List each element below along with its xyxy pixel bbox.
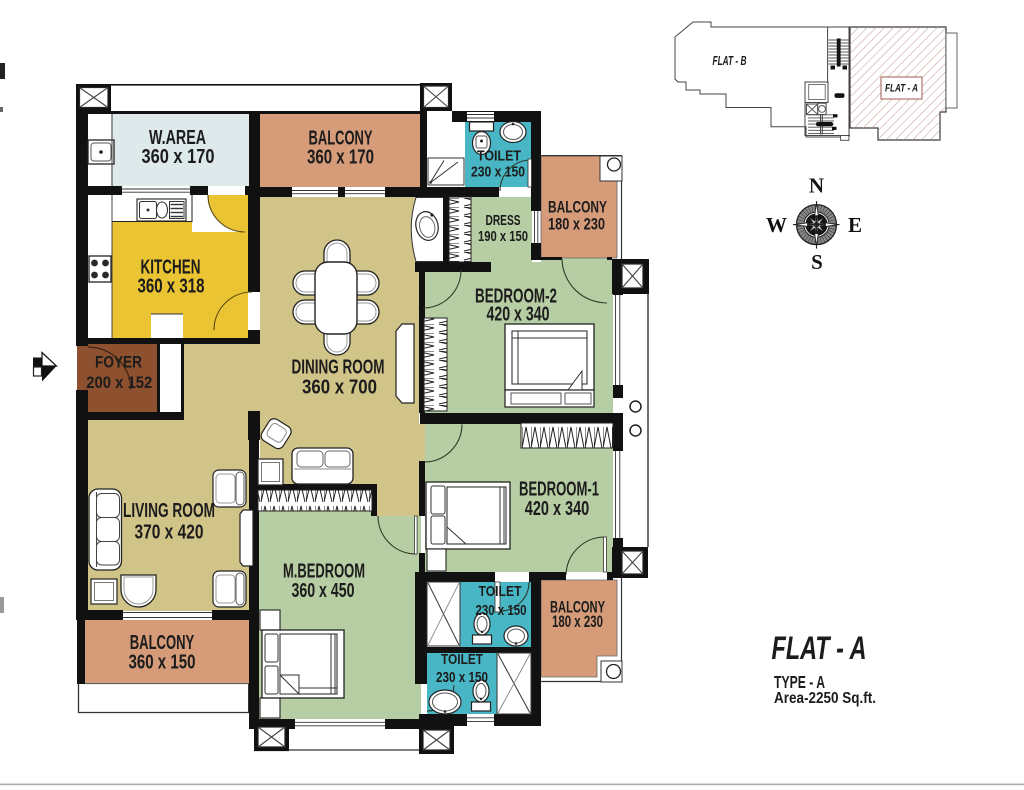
svg-text:FLAT - B: FLAT - B	[713, 53, 747, 68]
svg-text:DRESS: DRESS	[486, 212, 521, 229]
svg-text:FOYER: FOYER	[95, 353, 142, 372]
svg-text:230 x 150: 230 x 150	[476, 602, 527, 619]
svg-text:TOILET: TOILET	[477, 148, 521, 165]
svg-text:360 x 150: 360 x 150	[129, 652, 196, 674]
svg-text:230 x 150: 230 x 150	[471, 164, 525, 181]
svg-text:FLAT - A: FLAT - A	[772, 630, 867, 666]
svg-text:TYPE - A: TYPE - A	[774, 672, 825, 692]
svg-text:360 x 450: 360 x 450	[292, 580, 355, 602]
svg-text:360 x 170: 360 x 170	[142, 146, 215, 168]
svg-text:360 x 170: 360 x 170	[307, 147, 374, 169]
svg-text:180 x 230: 180 x 230	[552, 612, 603, 631]
svg-text:LIVING ROOM: LIVING ROOM	[123, 500, 215, 522]
svg-text:N: N	[809, 174, 824, 198]
svg-text:S: S	[811, 250, 823, 274]
svg-text:360 x 318: 360 x 318	[138, 276, 205, 298]
svg-text:420 x 340: 420 x 340	[487, 304, 550, 326]
svg-text:E: E	[848, 213, 862, 237]
svg-text:190 x 150: 190 x 150	[478, 228, 528, 245]
svg-text:230 x 150: 230 x 150	[436, 669, 488, 686]
svg-text:Area-2250 Sq.ft.: Area-2250 Sq.ft.	[774, 690, 876, 707]
svg-text:DINING ROOM: DINING ROOM	[292, 357, 385, 379]
svg-text:TOILET: TOILET	[479, 583, 522, 600]
svg-text:420 x 340: 420 x 340	[525, 498, 590, 520]
svg-text:200 x 152: 200 x 152	[86, 373, 152, 392]
svg-text:FLAT - A: FLAT - A	[885, 83, 918, 95]
svg-text:360 x 700: 360 x 700	[302, 377, 377, 399]
svg-text:180 x 230: 180 x 230	[548, 215, 605, 234]
svg-text:370 x 420: 370 x 420	[135, 522, 204, 544]
svg-text:W: W	[766, 213, 787, 237]
svg-text:TOILET: TOILET	[441, 651, 483, 668]
